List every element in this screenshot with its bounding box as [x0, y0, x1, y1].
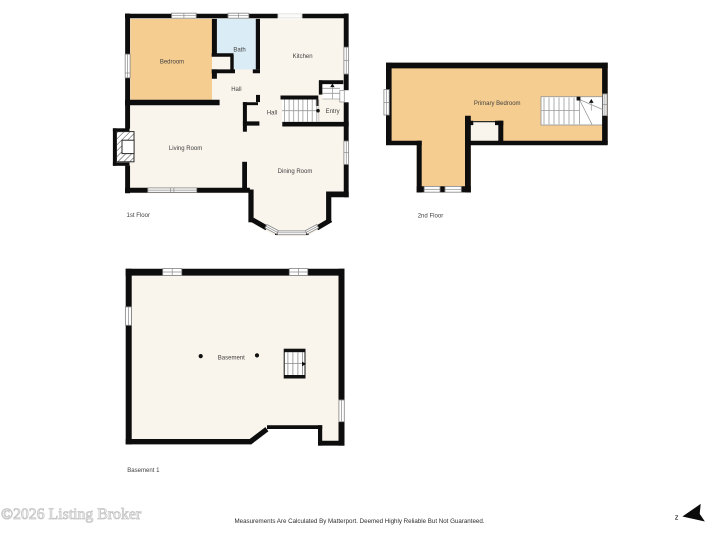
svg-text:Measurements Are Calculated By: Measurements Are Calculated By Matterpor… [234, 518, 484, 525]
svg-text:Living Room: Living Room [169, 146, 202, 152]
svg-text:Dining Room: Dining Room [278, 169, 313, 175]
svg-text:Entry: Entry [326, 109, 340, 115]
svg-text:Hall: Hall [267, 110, 277, 116]
svg-text:Kitchen: Kitchen [293, 54, 313, 60]
svg-text:©2026 Listing Broker: ©2026 Listing Broker [1, 506, 142, 523]
svg-text:Bedroom: Bedroom [160, 59, 184, 65]
svg-text:Bath: Bath [233, 47, 245, 53]
svg-text:Basement: Basement [218, 355, 245, 361]
svg-text:1st Floor: 1st Floor [127, 213, 151, 219]
svg-text:z: z [675, 513, 679, 522]
svg-text:Basement 1: Basement 1 [127, 468, 160, 474]
svg-text:Primary Bedroom: Primary Bedroom [474, 101, 521, 107]
svg-text:2nd Floor: 2nd Floor [418, 213, 444, 219]
svg-text:Hall: Hall [231, 87, 241, 93]
